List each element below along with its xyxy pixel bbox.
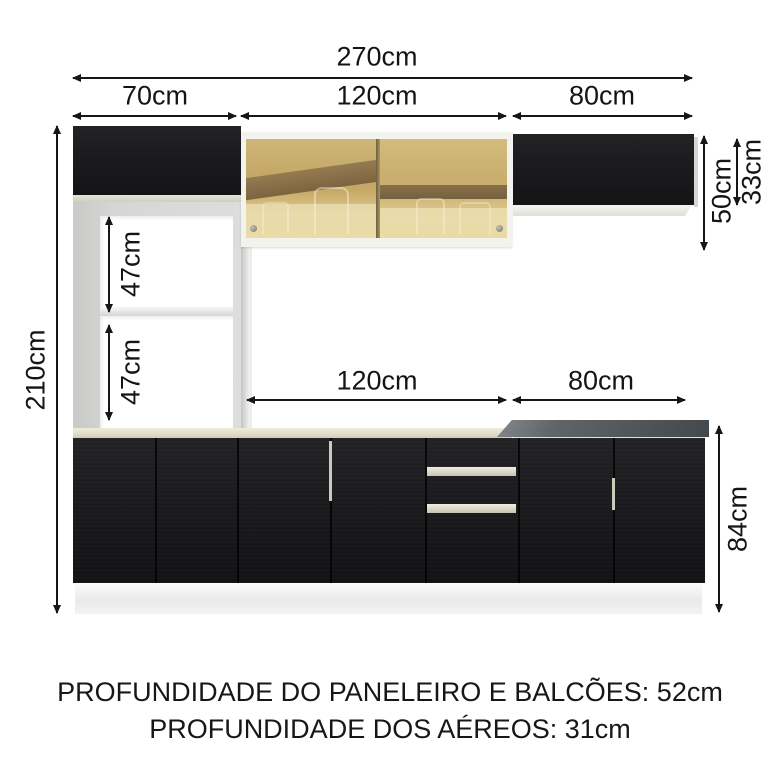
jar-silhouette [262, 202, 289, 234]
door-handle-recess [329, 441, 332, 501]
drawer-handle [427, 504, 516, 513]
paneleiro-shelf [100, 307, 233, 316]
label-width-120-bottom: 120cm [336, 368, 417, 395]
label-niche-top-47: 47cm [118, 231, 145, 297]
plinth [75, 583, 702, 614]
label-aereo-50: 50cm [709, 158, 736, 224]
footer-depth-paneleiro-balcoes: PROFUNDIDADE DO PANELEIRO E BALCÕES: 52c… [0, 679, 780, 706]
door-knob [250, 225, 257, 232]
door-seam [237, 438, 239, 583]
door-handle-recess [612, 478, 615, 510]
arrow-width-120-top [241, 115, 506, 117]
black-aereo-side-panel [694, 137, 698, 207]
glass-door-right [380, 139, 507, 238]
countertop-cream [73, 428, 512, 438]
arrow-width-120-bottom [247, 399, 506, 401]
arrow-width-80-bottom [513, 399, 685, 401]
paneleiro-top-edge [73, 195, 241, 202]
kitchen-dimension-diagram: 270cm 70cm 120cm 80cm 120cm 80cm 210cm 4… [0, 0, 780, 780]
label-height-210: 210cm [23, 329, 50, 410]
paneleiro-top-door [73, 126, 241, 195]
paneleiro-body [73, 202, 241, 428]
glass-reflection-band [380, 185, 507, 200]
jar-silhouette [314, 187, 349, 235]
arrow-width-80-top [513, 115, 692, 117]
door-seam [613, 438, 615, 583]
base-cabinet-run [73, 438, 705, 583]
door-seam [518, 438, 520, 583]
arrow-niche-top-47 [108, 217, 110, 312]
glass-aereo-cabinet [241, 132, 512, 247]
label-niche-bottom-47: 47cm [118, 339, 145, 405]
arrow-total-width [73, 77, 692, 79]
countertop-gray [497, 420, 709, 437]
label-width-80-bottom: 80cm [568, 368, 634, 395]
glass-reflection-band [246, 158, 376, 201]
arrow-width-70 [73, 115, 236, 117]
label-width-70: 70cm [122, 83, 188, 110]
label-total-width: 270cm [336, 44, 417, 71]
black-aereo-cabinet [513, 134, 694, 205]
arrow-base-84 [718, 426, 720, 612]
footer-depth-aereos: PROFUNDIDADE DOS AÉREOS: 31cm [0, 716, 780, 743]
black-aereo-underside [513, 205, 692, 216]
drawer-handle [427, 467, 516, 476]
arrow-height-210 [56, 126, 58, 613]
glass-door-left [246, 139, 376, 238]
arrow-aereo-50 [703, 136, 705, 250]
door-seam [155, 438, 157, 583]
label-width-120-top: 120cm [336, 83, 417, 110]
label-base-84: 84cm [725, 486, 752, 552]
jar-silhouette [459, 202, 491, 234]
jar-silhouette [416, 198, 445, 234]
label-width-80-top: 80cm [569, 83, 635, 110]
arrow-niche-bottom-47 [108, 325, 110, 420]
door-knob [496, 225, 503, 232]
label-aereo-33: 33cm [739, 139, 766, 205]
